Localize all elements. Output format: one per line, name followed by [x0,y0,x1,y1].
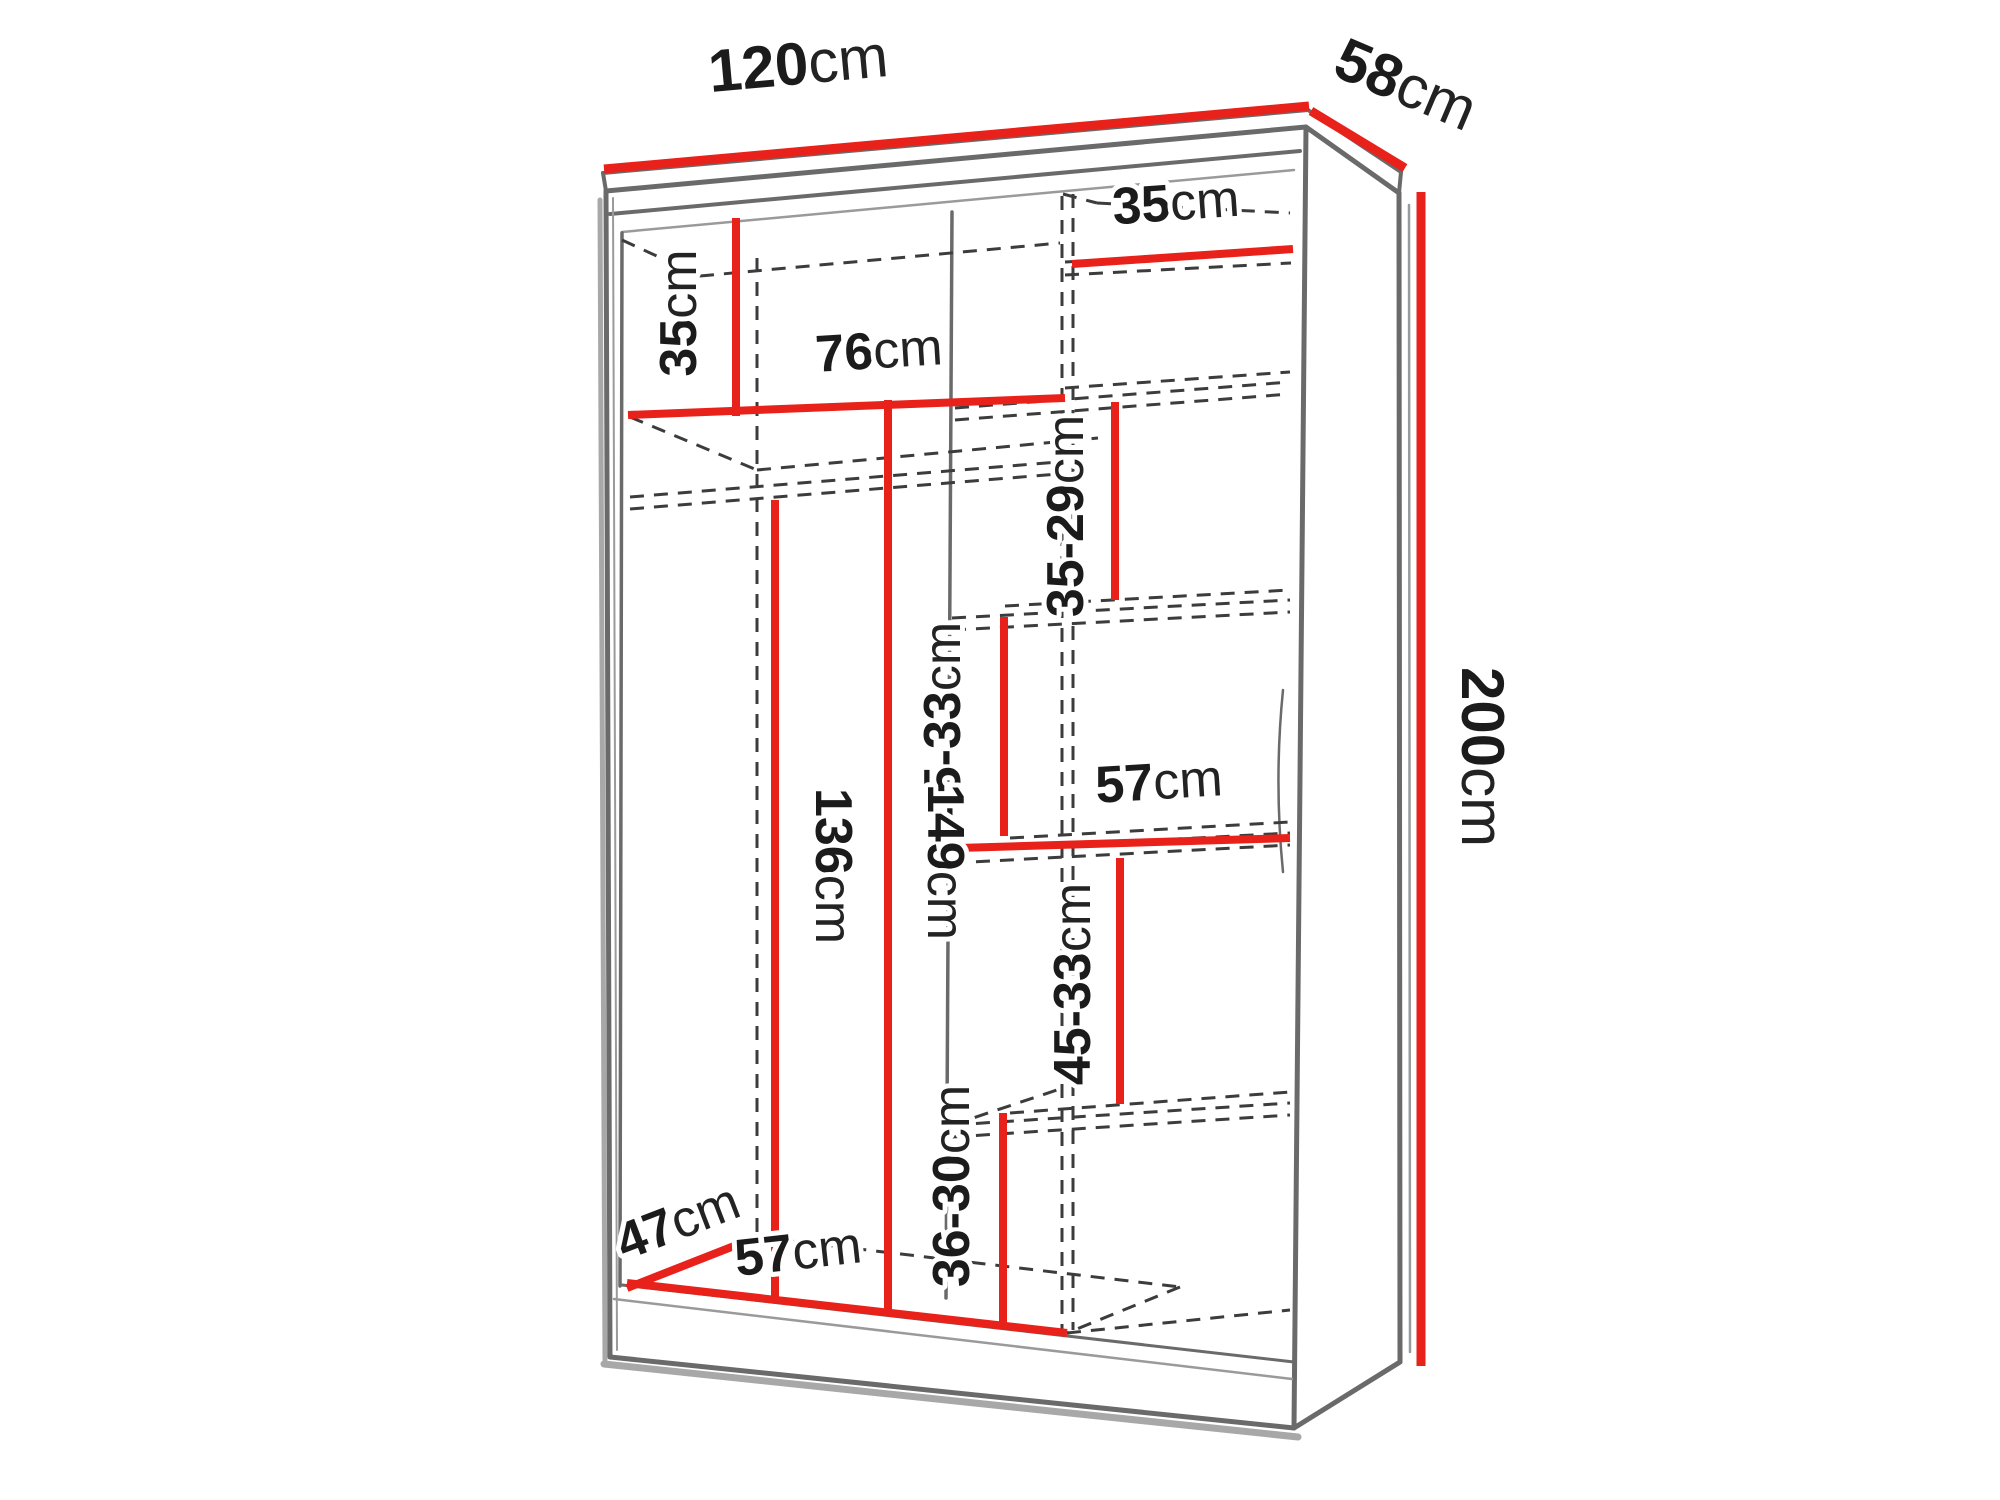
left-shelf-depth-edge [630,417,757,470]
top-panel-left-edge [603,173,606,191]
dim-label-gap-35-29: 35-29cm [1037,415,1095,617]
dim-label-hanging-149: 149cm [916,784,974,940]
left-wall-outer-line [613,198,617,1350]
left-wall-inner-edge [620,233,622,1286]
back-wall-top-edge-left [700,243,1060,276]
shelf-b-top-edge [952,600,1290,618]
diagram-canvas: 120cm 58cm 200cm 35cm 35cm 76cm 35-29cm … [0,0,2000,1500]
dim-label-gap-36-30: 36-30cm [923,1085,981,1287]
bottom-shadow-edge [604,1364,1298,1437]
dim-label-width-120: 120cm [705,22,890,105]
dim-label-bottom-width-57: 57cm [732,1216,865,1288]
floor-right-front-edge [1067,1310,1290,1333]
dim-line-right-width-35 [1072,249,1293,264]
dim-label-left-width-76: 76cm [814,318,944,384]
door-handle [1279,690,1284,872]
wardrobe-diagram: 120cm 58cm 200cm 35cm 35cm 76cm 35-29cm … [0,0,2000,1500]
dim-line-left-width-76 [628,398,1065,415]
dim-label-hanging-136: 136cm [804,788,862,944]
partition-top-depth-stub [1063,194,1097,203]
hanging-rod-back [630,474,1058,509]
side-panel-rear-edge [1399,193,1400,1362]
side-panel-edge-highlight [1409,205,1410,1352]
shelf-a2-rear-edge [1065,372,1290,388]
dim-label-right-width-35: 35cm [1110,170,1241,237]
dim-label-depth-58: 58cm [1325,25,1486,144]
dim-label-gap-45-33-lower: 45-33cm [1044,883,1102,1085]
side-panel-bottom-edge [1294,1362,1400,1428]
dim-label-left-top-35: 35cm [650,249,708,376]
top-panel-right-corner [1399,172,1401,193]
dim-label-shelf-width-57: 57cm [1094,749,1224,815]
shelf-d-rear-edge [1010,1092,1290,1113]
dim-label-depth-47: 47cm [608,1172,748,1272]
dim-label-height-200: 200cm [1449,667,1516,847]
